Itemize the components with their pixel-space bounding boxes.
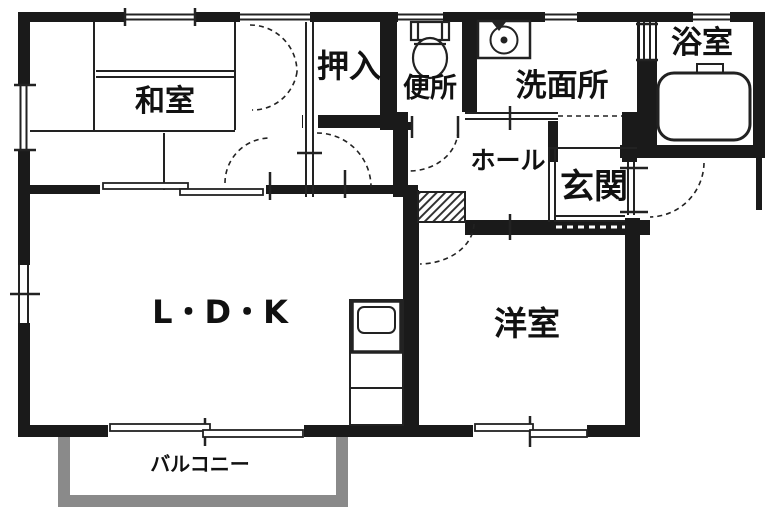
ldk-corridor-door-arc [225,138,270,183]
floor-plan: 和室 押入 便所 洗面所 浴室 ホール 玄関 L・D・K 洋室 バルコニー [0,0,775,518]
closet-door-arc-lower [252,72,297,110]
room-label-balcony: バルコニー [150,452,250,476]
room-label-washitsu: 和室 [135,84,195,119]
room-label-genkan: 玄関 [560,167,628,207]
bathtub-icon [658,64,750,140]
closet-door-arc-upper [250,25,297,72]
toilet-icon [411,22,449,78]
room-label-benjo: 便所 [403,73,457,104]
entrance-door-arc [650,163,704,217]
toilet-door-arc [410,131,458,171]
room-label-yokushitsu: 浴室 [671,25,733,61]
kitchen-sink-icon [350,300,403,425]
room-label-hall: ホール [470,146,545,175]
washitsu-ldk-sliding-door [103,183,188,189]
washing-machine-icon [478,21,530,58]
yoshitsu-sliding-window [475,424,533,431]
room-label-senmenjo: 洗面所 [516,68,609,104]
floor-plan-drawing: 和室 押入 便所 洗面所 浴室 ホール 玄関 L・D・K 洋室 バルコニー [0,0,775,518]
room-label-ldk: L・D・K [152,293,289,331]
hatched-door-panel [418,192,465,222]
balcony-sliding-window [110,424,210,431]
room-label-oshiire: 押入 [317,47,381,85]
room-label-yoshitsu: 洋室 [494,304,560,343]
